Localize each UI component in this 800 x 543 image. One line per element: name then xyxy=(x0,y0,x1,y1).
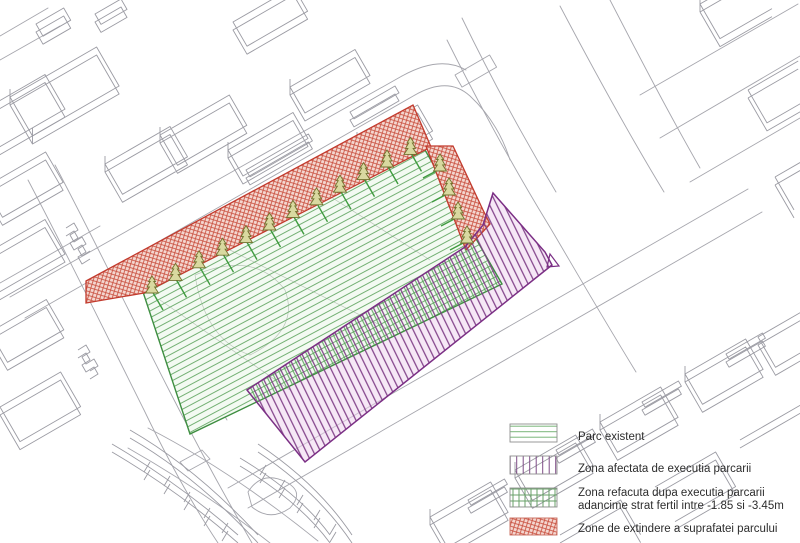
buildings-east-block xyxy=(700,0,800,218)
legend-label: Zone de extindere a suprafatei parcului xyxy=(578,523,777,535)
legend-swatch-green-lines xyxy=(510,424,557,442)
legend-label-line2: adancime strat fertil intre -1.85 si -3.… xyxy=(578,500,784,512)
legend-item-parking-affected: Zona afectata de executia parcarii xyxy=(510,456,751,475)
site-plan-drawing: Parc existent Zona afectata de executia … xyxy=(0,0,800,543)
legend-item-park-extension: Zone de extindere a suprafatei parcului xyxy=(510,518,777,535)
legend-swatch-red-crosshatch xyxy=(510,518,557,535)
legend: Parc existent Zona afectata de executia … xyxy=(510,424,784,535)
site-plan-canvas: Parc existent Zona afectata de executia … xyxy=(0,0,800,543)
legend-swatch-purple-lines xyxy=(510,456,557,474)
legend-item-restored-zone: Zona refacuta dupa executia parcarii ada… xyxy=(510,487,784,512)
legend-label: Zona afectata de executia parcarii xyxy=(578,463,751,475)
legend-label-line1: Zona refacuta dupa executia parcarii xyxy=(578,487,765,499)
legend-swatch-green-grid xyxy=(510,488,557,507)
buildings-west-block xyxy=(0,83,98,450)
legend-item-park-existing: Parc existent xyxy=(510,424,645,443)
legend-label: Parc existent xyxy=(578,431,645,443)
